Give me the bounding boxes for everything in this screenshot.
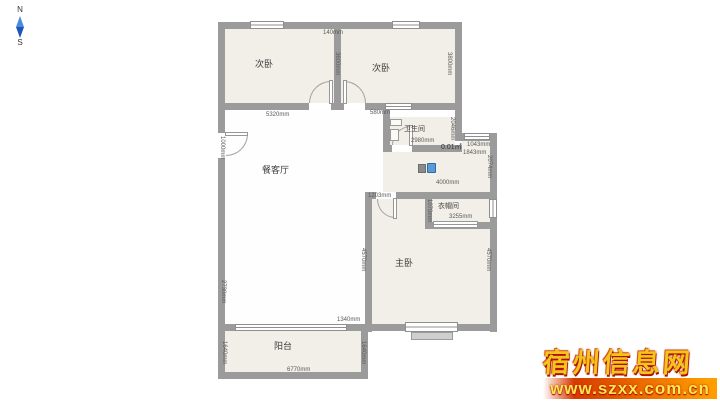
watermark-site-url: www.szxx.com.cn (543, 378, 717, 399)
wall (218, 372, 368, 379)
dim-bedroom-left-depth: 3600mm (334, 52, 340, 75)
dim-cloakroom-depth: 1070mm (426, 199, 432, 222)
dim-master-depth-left: 4570mm (360, 248, 366, 271)
dim-top-wall-gap: 140mm (323, 30, 343, 36)
balcony-sliding-door (235, 324, 347, 331)
dim-living-left-segment: 2730mm (220, 280, 226, 303)
dim-bathroom-depth: 2046mm (449, 117, 455, 140)
dim-bathroom-width: 2980mm (411, 138, 434, 144)
bedroom-left-door-leaf (329, 80, 333, 104)
dim-entry-door-width: 1000mm (219, 136, 225, 159)
window (489, 199, 497, 218)
wall (218, 22, 225, 133)
balcony-label: 阳台 (274, 342, 292, 351)
dim-hall-right-width: 1843mm (463, 150, 486, 156)
entry-door-leaf (225, 132, 248, 136)
wall (365, 192, 372, 332)
dim-corridor-width: 1043mm (467, 142, 490, 148)
dim-tiny-area: 0.01㎡ (441, 144, 462, 151)
wall (347, 324, 405, 331)
window (250, 21, 284, 29)
compass-north-label: N (14, 6, 26, 14)
bay-window (405, 322, 458, 332)
dim-master-door-offset: 1203mm (368, 193, 391, 199)
compass-south-label: S (14, 39, 26, 47)
toilet-icon (390, 129, 399, 141)
dim-living-width: 5320mm (266, 112, 289, 118)
bedroom-right-label: 次卧 (372, 64, 390, 73)
compass-needle-north-icon (16, 16, 24, 27)
wall (331, 103, 344, 110)
bay-window-sill (411, 332, 453, 340)
dim-balcony-depth-right: 1640mm (360, 341, 366, 364)
dim-balcony-depth-left: 1640mm (221, 341, 227, 364)
wall (396, 192, 497, 199)
hall-floor (383, 152, 490, 192)
wall (455, 22, 462, 141)
window (385, 103, 412, 110)
wall (458, 324, 497, 331)
appliance-icon (418, 164, 426, 173)
bedroom-left-label: 次卧 (255, 60, 273, 69)
dim-hall-width: 4000mm (436, 180, 459, 186)
bathroom-label: 卫生间 (404, 126, 425, 133)
dim-balcony-width: 6770mm (287, 367, 310, 373)
dim-corridor-depth: 2074mm (486, 155, 492, 178)
cloakroom-closet (433, 221, 478, 228)
washing-machine-icon (427, 163, 436, 173)
dim-bedroom-right-depth: 3800mm (446, 52, 452, 75)
master-door-leaf (393, 198, 397, 219)
window (464, 133, 490, 140)
living-dining-floor (225, 110, 383, 324)
dim-cloakroom-width: 3255mm (449, 214, 472, 220)
watermark: 宿州信息网 www.szxx.com.cn (543, 341, 717, 399)
compass-needle-south-icon (16, 27, 24, 38)
master-bedroom-label: 主卧 (395, 259, 413, 268)
balcony-floor (225, 331, 361, 372)
wall (218, 103, 309, 110)
dim-master-depth-right: 4570mm (485, 248, 491, 271)
compass: N S (8, 6, 38, 50)
dim-bath-offset: 580mm (370, 110, 390, 116)
sink-icon (390, 119, 402, 126)
bedroom-right-door-leaf (343, 80, 347, 104)
dim-bay-offset: 1340mm (337, 317, 360, 323)
living-dining-label: 餐客厅 (262, 166, 289, 175)
wall (383, 145, 392, 152)
cloakroom-label: 衣帽间 (438, 203, 459, 210)
floor-plan-image: N S (0, 0, 720, 405)
watermark-site-name: 宿州信息网 (542, 341, 719, 380)
window (392, 21, 420, 29)
wall (365, 103, 462, 110)
